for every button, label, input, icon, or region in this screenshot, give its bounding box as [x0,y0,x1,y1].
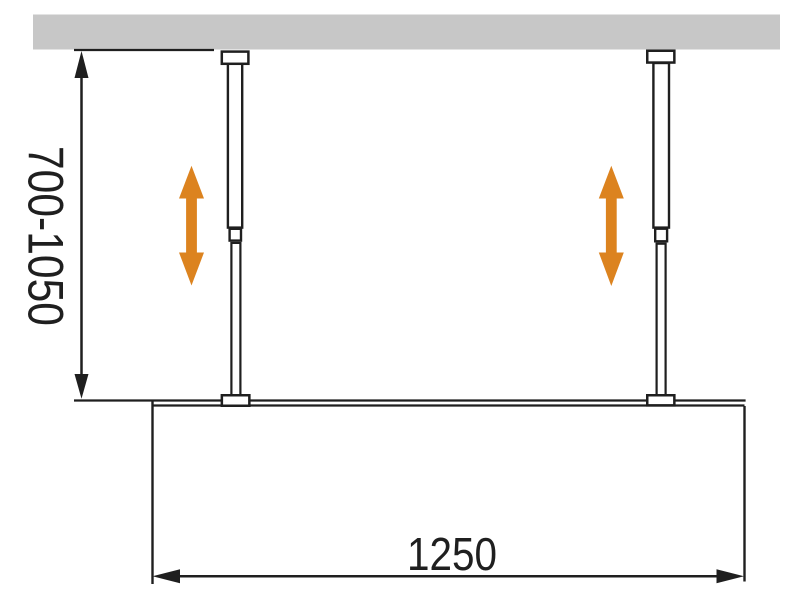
svg-text:1250: 1250 [407,528,497,580]
svg-text:700-1050: 700-1050 [18,146,74,326]
